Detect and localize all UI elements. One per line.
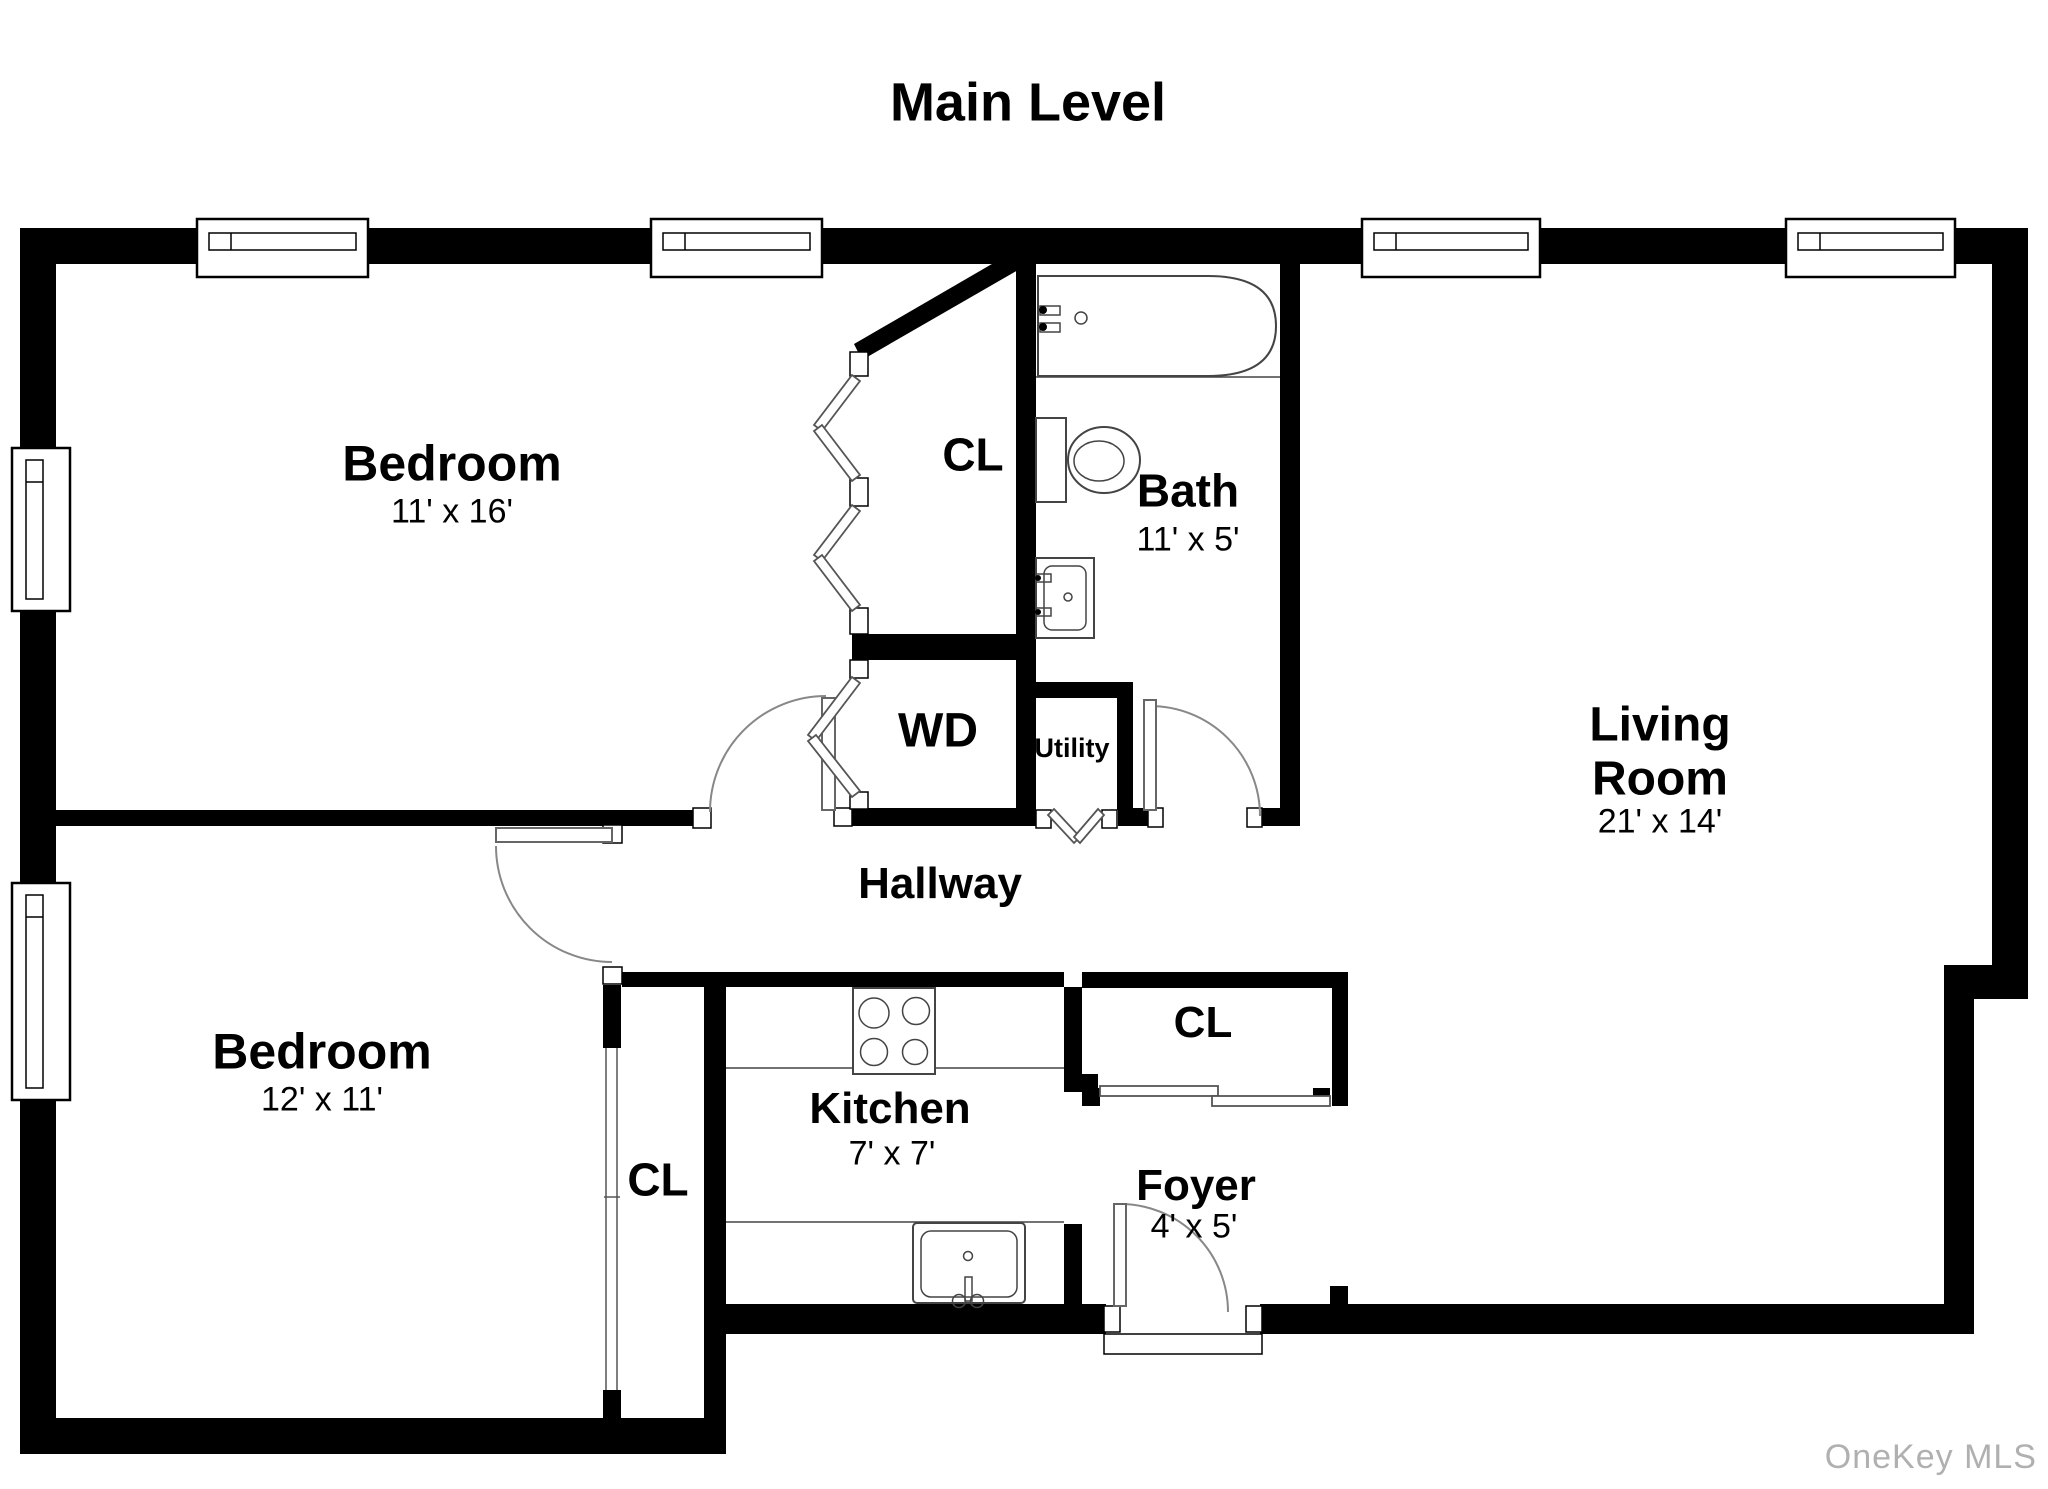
jamb <box>834 808 852 826</box>
wall-bath-left <box>1016 258 1036 826</box>
wall-closet-diagonal <box>854 250 1025 360</box>
window-top-3 <box>1362 219 1540 277</box>
room-dims-bedroom2: 12' x 11' <box>261 1081 383 1118</box>
wall-bottom-right <box>1260 1304 1974 1334</box>
door-bedroom2 <box>496 828 612 962</box>
wall-kitchen-right-lower <box>1064 1224 1082 1304</box>
window-left-2 <box>12 883 70 1100</box>
wall-kitchen-right-stub <box>1064 1074 1098 1092</box>
room-label-living-room: Living Room <box>1535 698 1785 806</box>
wall-foyercl-right <box>1332 988 1348 1106</box>
room-label-wd: WD <box>898 706 978 759</box>
room-label-foyer: Foyer <box>1136 1162 1256 1210</box>
wall-closet2-track-bottom <box>603 1390 621 1418</box>
jamb <box>850 608 868 634</box>
sliding-door-bedroom2-closet <box>604 1048 620 1390</box>
wall-left <box>20 228 56 1454</box>
room-label-closet-top: CL <box>942 430 1003 481</box>
jamb <box>693 808 711 828</box>
room-label-hallway: Hallway <box>858 860 1022 908</box>
room-dims-bath: 11' x 5' <box>1136 521 1239 558</box>
room-dims-kitchen: 7' x 7' <box>849 1135 936 1172</box>
jamb <box>850 352 868 376</box>
window-top-2 <box>651 219 822 277</box>
sliding-door-foyer-closet <box>1100 1086 1330 1106</box>
wall-closet2-track-top <box>603 985 621 1048</box>
plan-title: Main Level <box>890 73 1166 132</box>
jamb <box>1036 810 1051 828</box>
room-label-bedroom2: Bedroom <box>212 1025 431 1080</box>
bathroom-sink <box>1035 558 1094 638</box>
floor-plan: Main Level Bedroom 11' x 16' CL Bath 11'… <box>0 0 2048 1489</box>
wall-utility-right <box>1117 696 1133 810</box>
door-bath <box>1144 700 1260 816</box>
watermark: OneKey MLS <box>1825 1438 2037 1477</box>
kitchen-sink <box>913 1223 1025 1308</box>
toilet <box>1036 418 1140 502</box>
wall-kitchen-left <box>704 973 726 1454</box>
bathtub <box>1036 276 1280 377</box>
wall-foyercl-top <box>1082 972 1348 988</box>
door-bedroom1 <box>710 696 835 812</box>
wall-wd-bottom <box>852 808 1036 826</box>
bifold-utility <box>1048 809 1104 843</box>
entry-threshold <box>1104 1334 1262 1354</box>
wall-bottom-left <box>20 1418 726 1454</box>
jamb <box>850 478 868 506</box>
wall-bath-right <box>1280 258 1300 826</box>
wall-wd-top <box>852 634 1018 660</box>
room-dims-living-room: 21' x 14' <box>1598 803 1723 840</box>
room-label-utility: Utility <box>1034 734 1109 764</box>
wall-hallway-bottom <box>622 972 1064 987</box>
wall-right-lower <box>1944 997 1974 1334</box>
room-dims-foyer: 4' x 5' <box>1151 1208 1238 1245</box>
wall-kitchen-bottom <box>704 1304 1106 1334</box>
room-label-kitchen: Kitchen <box>809 1085 970 1133</box>
room-dims-bedroom1: 11' x 16' <box>391 493 513 530</box>
jamb <box>850 660 868 678</box>
jamb <box>1104 1306 1120 1332</box>
jamb <box>1246 1306 1262 1332</box>
room-label-closet-foyer: CL <box>1174 999 1233 1047</box>
wall-bedroom-divider <box>56 810 693 826</box>
window-left-1 <box>12 448 70 611</box>
jamb <box>1102 810 1117 828</box>
jamb <box>603 967 622 984</box>
wall-utility-top <box>1036 682 1133 698</box>
window-top-1 <box>197 219 368 277</box>
room-label-closet-bedroom2: CL <box>627 1155 688 1206</box>
room-label-bedroom1: Bedroom <box>342 437 561 492</box>
room-label-bath: Bath <box>1137 466 1239 517</box>
wall-stub-foyer-living <box>1330 1286 1348 1306</box>
stove <box>853 988 935 1074</box>
window-top-4 <box>1786 219 1955 277</box>
wall-right-upper <box>1992 228 2028 997</box>
